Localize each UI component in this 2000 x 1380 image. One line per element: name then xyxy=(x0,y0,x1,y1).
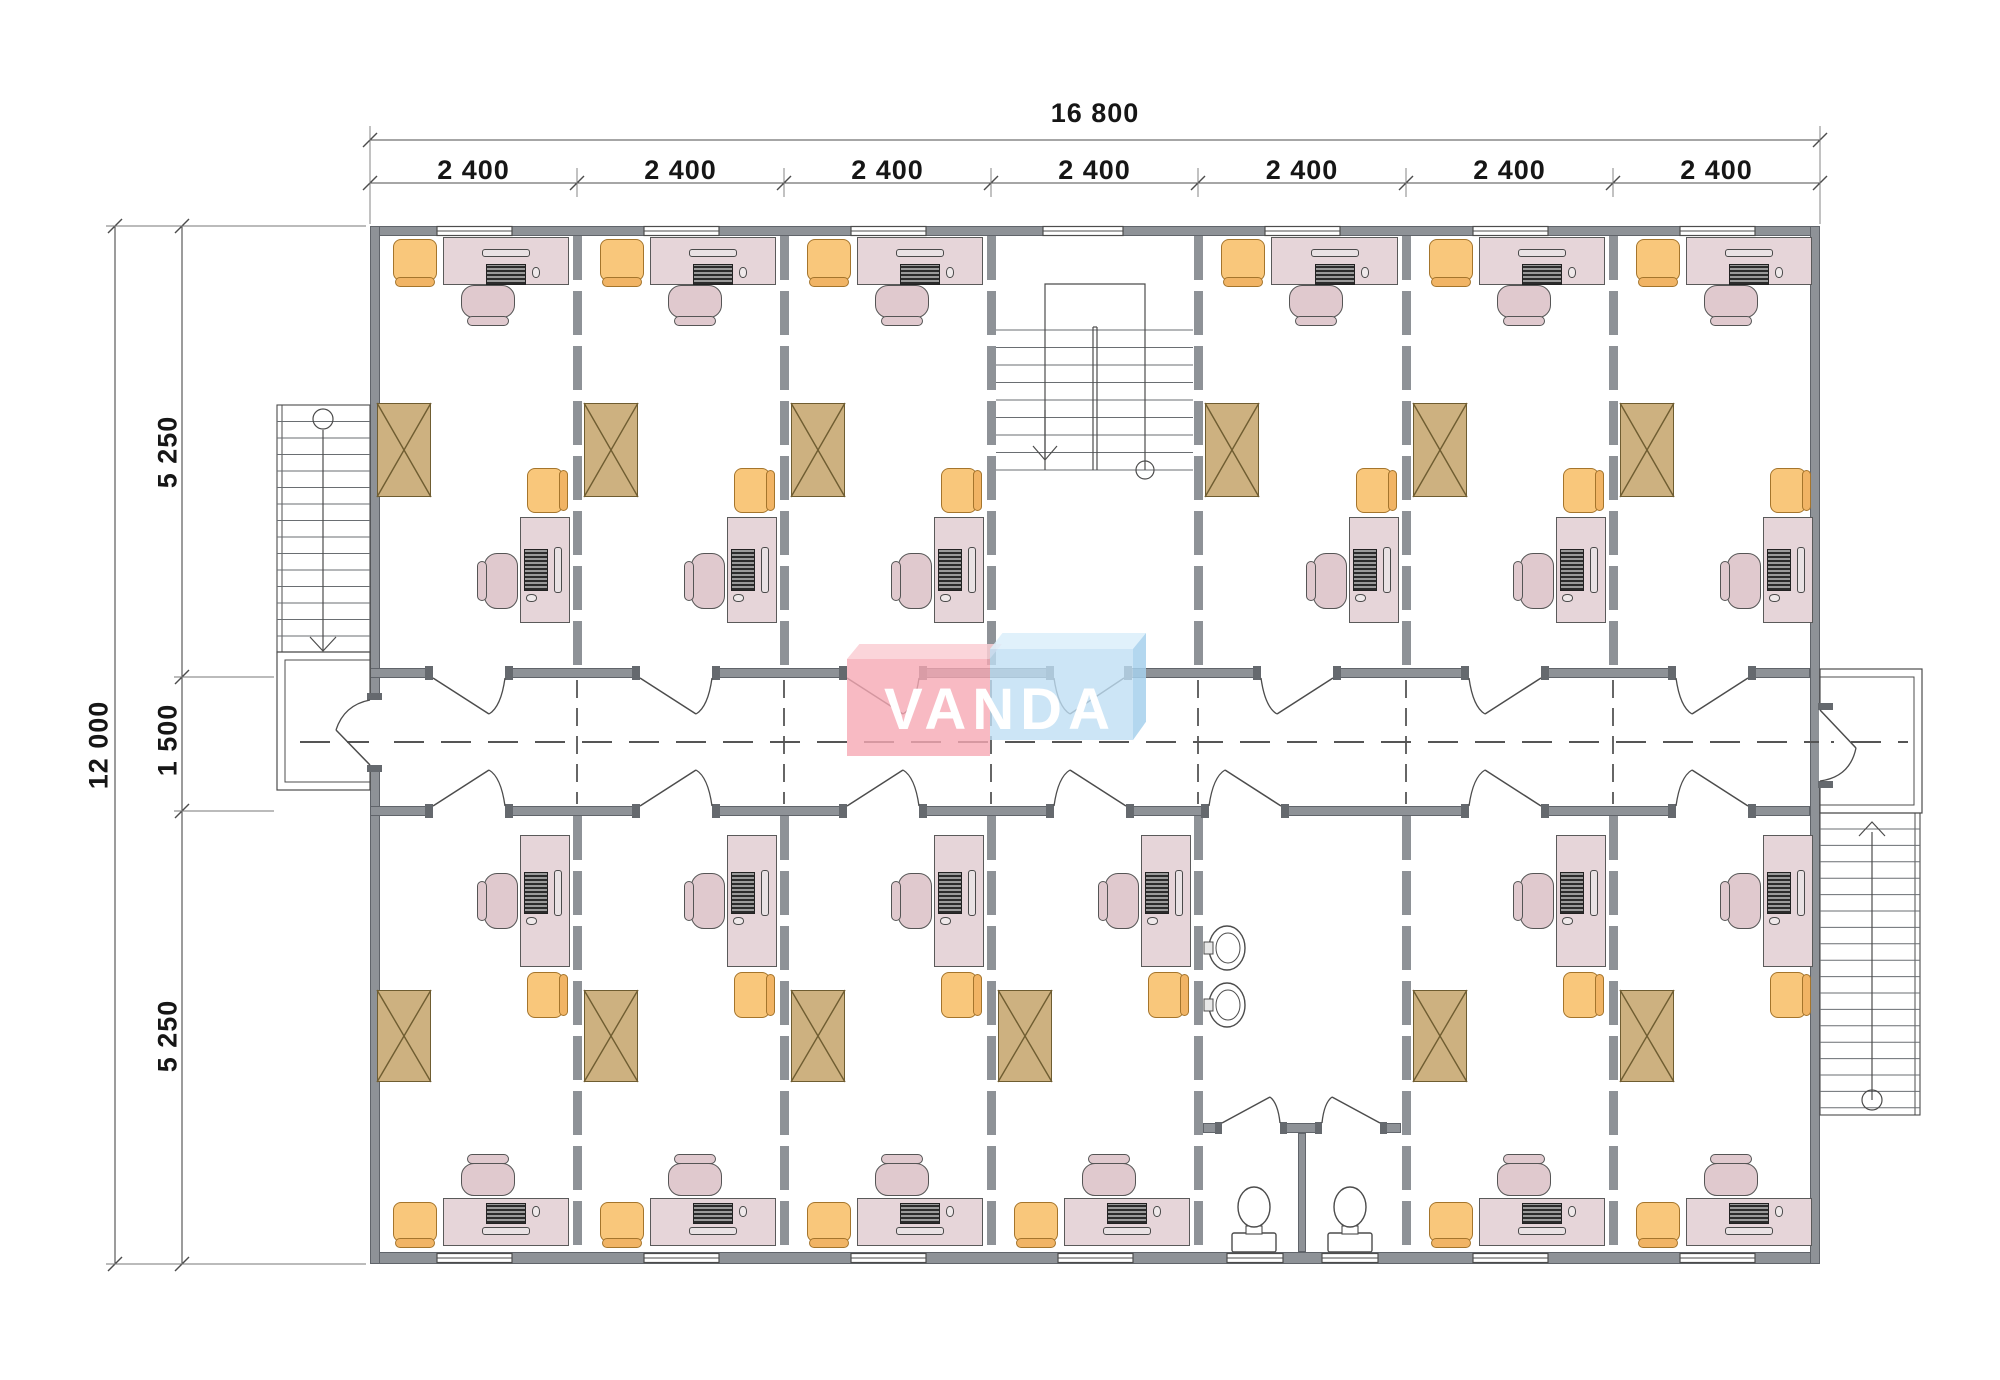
storage-cabinet xyxy=(584,403,638,497)
office-chair xyxy=(898,553,932,609)
dimension-total-width: 16 800 xyxy=(370,98,1820,129)
computer-keyboard xyxy=(1560,549,1584,591)
computer-mouse xyxy=(1562,917,1573,925)
office-chair-back xyxy=(891,561,901,601)
office-chair xyxy=(898,873,932,929)
computer-mouse xyxy=(526,917,537,925)
office-chair-back xyxy=(1306,561,1316,601)
armchair xyxy=(1636,1202,1680,1242)
computer-mouse xyxy=(946,267,954,278)
computer-monitor xyxy=(761,547,769,593)
bay-dimension-label: 2 400 xyxy=(1613,155,1820,186)
computer-keyboard xyxy=(693,264,733,285)
bay-dimension-label: 2 400 xyxy=(370,155,577,186)
armchair-back xyxy=(559,974,568,1016)
office-chair-back xyxy=(674,1154,716,1164)
armchair xyxy=(527,972,563,1018)
armchair xyxy=(600,239,644,281)
computer-monitor xyxy=(1383,547,1391,593)
armchair xyxy=(1770,468,1806,513)
outer-wall-left xyxy=(370,226,380,1264)
computer-mouse xyxy=(1361,267,1369,278)
computer-monitor xyxy=(1103,1227,1151,1235)
armchair-back xyxy=(766,470,775,511)
partition-wall xyxy=(573,816,582,1252)
computer-monitor xyxy=(1590,870,1598,916)
dimension-total-height: 12 000 xyxy=(84,701,115,790)
computer-keyboard xyxy=(524,872,548,914)
bay-dimension-label: 2 400 xyxy=(991,155,1198,186)
computer-monitor xyxy=(896,249,944,257)
office-chair xyxy=(875,1163,929,1196)
partition-wall xyxy=(1194,236,1203,668)
armchair-back xyxy=(602,277,642,287)
armchair-back xyxy=(809,277,849,287)
storage-cabinet xyxy=(998,990,1052,1082)
office-chair xyxy=(1313,553,1347,609)
computer-mouse xyxy=(532,267,540,278)
armchair xyxy=(600,1202,644,1242)
computer-keyboard xyxy=(1767,872,1791,914)
office-chair-back xyxy=(1503,316,1545,326)
office-chair-back xyxy=(1720,561,1730,601)
computer-mouse xyxy=(739,1206,747,1217)
dimension-segment-lower: 5 250 xyxy=(153,1000,184,1073)
armchair xyxy=(807,1202,851,1242)
computer-monitor xyxy=(968,870,976,916)
storage-cabinet xyxy=(791,990,845,1082)
logo-blue-box-top xyxy=(990,633,1146,649)
computer-mouse xyxy=(1775,267,1783,278)
bay-dimension-label: 2 400 xyxy=(1406,155,1613,186)
armchair-back xyxy=(973,470,982,511)
bay-dimension-label: 2 400 xyxy=(577,155,784,186)
storage-cabinet xyxy=(1620,990,1674,1082)
partition-wall xyxy=(1194,816,1203,1252)
storage-cabinet xyxy=(584,990,638,1082)
logo-text: VANDA xyxy=(884,676,1116,743)
office-chair-back xyxy=(881,1154,923,1164)
outer-wall-right xyxy=(1810,226,1820,1264)
computer-keyboard xyxy=(1522,264,1562,285)
armchair-back xyxy=(395,277,435,287)
computer-monitor xyxy=(482,249,530,257)
office-chair-back xyxy=(477,561,487,601)
office-chair-back xyxy=(467,1154,509,1164)
office-chair-back xyxy=(684,881,694,921)
computer-monitor xyxy=(482,1227,530,1235)
computer-mouse xyxy=(940,594,951,602)
computer-mouse xyxy=(946,1206,954,1217)
armchair xyxy=(1429,239,1473,281)
office-chair-back xyxy=(674,316,716,326)
washroom-stall-wall xyxy=(1203,1123,1401,1133)
armchair xyxy=(1148,972,1184,1018)
partition-wall xyxy=(780,236,789,668)
computer-mouse xyxy=(1568,1206,1576,1217)
armchair-back xyxy=(1638,277,1678,287)
armchair-back xyxy=(559,470,568,511)
office-chair xyxy=(484,553,518,609)
dimension-segment-upper: 5 250 xyxy=(153,416,184,489)
partition-wall xyxy=(987,816,996,1252)
armchair xyxy=(1563,972,1599,1018)
office-chair-back xyxy=(1088,1154,1130,1164)
office-chair xyxy=(1105,873,1139,929)
computer-mouse xyxy=(1769,594,1780,602)
armchair xyxy=(1014,1202,1058,1242)
armchair-back xyxy=(1638,1238,1678,1248)
computer-keyboard xyxy=(1522,1203,1562,1224)
partition-wall xyxy=(987,236,996,668)
armchair-back xyxy=(1431,1238,1471,1248)
logo-pink-box-top xyxy=(847,644,1002,659)
armchair xyxy=(941,972,977,1018)
armchair xyxy=(393,1202,437,1242)
armchair xyxy=(734,972,770,1018)
office-chair xyxy=(461,285,515,318)
storage-cabinet xyxy=(791,403,845,497)
storage-cabinet xyxy=(1620,403,1674,497)
computer-monitor xyxy=(896,1227,944,1235)
armchair-back xyxy=(1223,277,1263,287)
armchair xyxy=(807,239,851,281)
computer-mouse xyxy=(733,594,744,602)
computer-keyboard xyxy=(731,872,755,914)
office-chair xyxy=(1497,1163,1551,1196)
computer-mouse xyxy=(1568,267,1576,278)
armchair-back xyxy=(395,1238,435,1248)
office-chair xyxy=(1704,285,1758,318)
armchair xyxy=(393,239,437,281)
armchair xyxy=(1636,239,1680,281)
office-chair xyxy=(1704,1163,1758,1196)
office-chair xyxy=(668,285,722,318)
storage-cabinet xyxy=(1205,403,1259,497)
computer-monitor xyxy=(761,870,769,916)
office-chair xyxy=(691,553,725,609)
office-chair xyxy=(1497,285,1551,318)
storage-cabinet xyxy=(1413,403,1467,497)
office-chair-back xyxy=(881,316,923,326)
office-chair-back xyxy=(1295,316,1337,326)
office-chair-back xyxy=(1513,561,1523,601)
computer-monitor xyxy=(1725,249,1773,257)
computer-keyboard xyxy=(1560,872,1584,914)
computer-monitor xyxy=(1797,870,1805,916)
partition-wall xyxy=(1609,816,1618,1252)
computer-keyboard xyxy=(1315,264,1355,285)
partition-wall xyxy=(780,816,789,1252)
computer-mouse xyxy=(1355,594,1366,602)
computer-monitor xyxy=(968,547,976,593)
computer-keyboard xyxy=(900,264,940,285)
computer-monitor xyxy=(554,870,562,916)
computer-mouse xyxy=(1769,917,1780,925)
office-chair-back xyxy=(477,881,487,921)
outer-wall-top xyxy=(370,226,1820,236)
computer-keyboard xyxy=(938,872,962,914)
computer-mouse xyxy=(1562,594,1573,602)
computer-monitor xyxy=(1518,1227,1566,1235)
computer-monitor xyxy=(554,547,562,593)
office-chair xyxy=(1520,873,1554,929)
armchair-back xyxy=(766,974,775,1016)
computer-monitor xyxy=(1518,249,1566,257)
floor-plan-canvas: 16 800 2 4002 4002 4002 4002 4002 4002 4… xyxy=(0,0,2000,1380)
computer-monitor xyxy=(689,249,737,257)
partition-wall xyxy=(1402,816,1411,1252)
computer-keyboard xyxy=(1107,1203,1147,1224)
office-chair-back xyxy=(1513,881,1523,921)
office-chair xyxy=(1289,285,1343,318)
computer-keyboard xyxy=(693,1203,733,1224)
armchair xyxy=(1356,468,1392,513)
armchair-back xyxy=(1802,974,1811,1016)
armchair xyxy=(734,468,770,513)
computer-monitor xyxy=(1590,547,1598,593)
computer-mouse xyxy=(940,917,951,925)
computer-mouse xyxy=(739,267,747,278)
computer-keyboard xyxy=(1353,549,1377,591)
computer-keyboard xyxy=(1145,872,1169,914)
armchair-back xyxy=(1595,470,1604,511)
armchair-back xyxy=(1016,1238,1056,1248)
office-chair-back xyxy=(467,316,509,326)
armchair-back xyxy=(1431,277,1471,287)
partition-wall xyxy=(573,236,582,668)
office-chair-back xyxy=(1098,881,1108,921)
armchair xyxy=(1563,468,1599,513)
armchair-back xyxy=(1388,470,1397,511)
office-chair-back xyxy=(1710,1154,1752,1164)
partition-wall xyxy=(1402,236,1411,668)
bay-dimension-label: 2 400 xyxy=(1198,155,1406,186)
computer-mouse xyxy=(526,594,537,602)
storage-cabinet xyxy=(377,990,431,1082)
armchair xyxy=(941,468,977,513)
office-chair xyxy=(668,1163,722,1196)
computer-keyboard xyxy=(938,549,962,591)
computer-mouse xyxy=(733,917,744,925)
office-chair xyxy=(484,873,518,929)
office-chair xyxy=(1727,553,1761,609)
armchair-back xyxy=(602,1238,642,1248)
armchair xyxy=(527,468,563,513)
corridor-wall-bottom xyxy=(370,806,1810,816)
armchair-back xyxy=(973,974,982,1016)
armchair xyxy=(1221,239,1265,281)
computer-keyboard xyxy=(486,1203,526,1224)
computer-monitor xyxy=(1311,249,1359,257)
office-chair xyxy=(1520,553,1554,609)
bay-dimension-label: 2 400 xyxy=(784,155,991,186)
computer-keyboard xyxy=(1729,264,1769,285)
logo-blue-box-side xyxy=(1133,633,1146,740)
computer-mouse xyxy=(1147,917,1158,925)
office-chair xyxy=(875,285,929,318)
armchair-back xyxy=(1802,470,1811,511)
armchair xyxy=(1770,972,1806,1018)
office-chair xyxy=(691,873,725,929)
outer-wall-bottom xyxy=(370,1252,1820,1264)
armchair xyxy=(1429,1202,1473,1242)
office-chair xyxy=(1082,1163,1136,1196)
office-chair-back xyxy=(684,561,694,601)
computer-keyboard xyxy=(1729,1203,1769,1224)
office-chair xyxy=(1727,873,1761,929)
computer-mouse xyxy=(532,1206,540,1217)
computer-monitor xyxy=(1725,1227,1773,1235)
computer-keyboard xyxy=(524,549,548,591)
partition-wall xyxy=(1609,236,1618,668)
computer-mouse xyxy=(1775,1206,1783,1217)
computer-keyboard xyxy=(900,1203,940,1224)
computer-keyboard xyxy=(1767,549,1791,591)
computer-monitor xyxy=(1175,870,1183,916)
office-chair-back xyxy=(1710,316,1752,326)
computer-mouse xyxy=(1153,1206,1161,1217)
computer-monitor xyxy=(689,1227,737,1235)
computer-monitor xyxy=(1797,547,1805,593)
washroom-stall-divider xyxy=(1298,1133,1306,1252)
dimension-segment-corridor: 1 500 xyxy=(153,704,184,777)
office-chair-back xyxy=(891,881,901,921)
armchair-back xyxy=(809,1238,849,1248)
office-chair-back xyxy=(1720,881,1730,921)
armchair-back xyxy=(1595,974,1604,1016)
computer-keyboard xyxy=(731,549,755,591)
armchair-back xyxy=(1180,974,1189,1016)
storage-cabinet xyxy=(1413,990,1467,1082)
office-chair xyxy=(461,1163,515,1196)
computer-keyboard xyxy=(486,264,526,285)
storage-cabinet xyxy=(377,403,431,497)
office-chair-back xyxy=(1503,1154,1545,1164)
